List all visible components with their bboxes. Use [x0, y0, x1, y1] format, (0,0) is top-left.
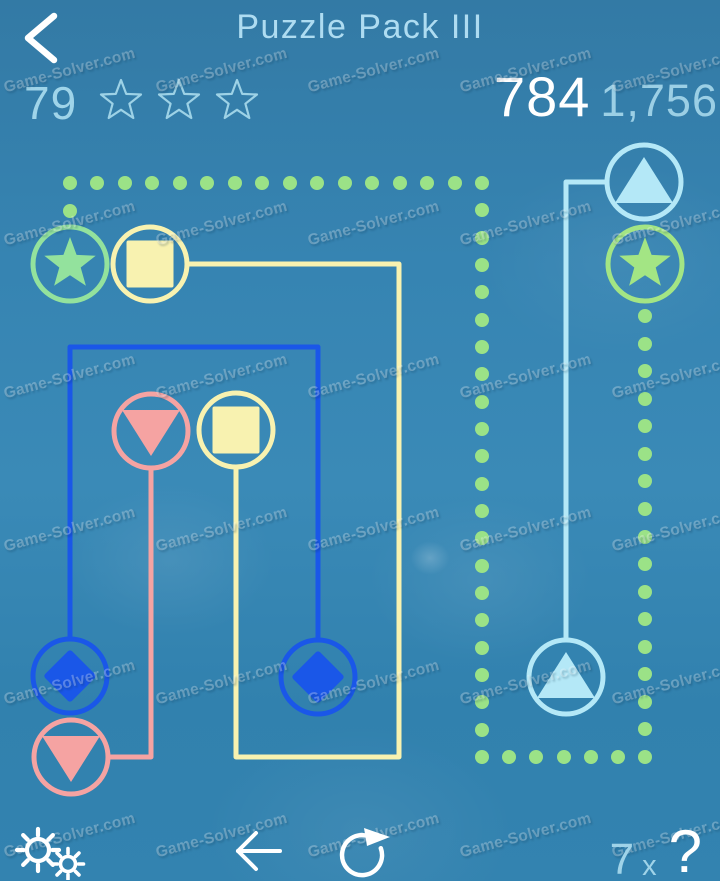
green-dot [638, 530, 652, 544]
hint-times-label: x [642, 820, 657, 881]
green-star-right-shape [619, 237, 670, 286]
green-dot [475, 613, 489, 627]
green-dot [63, 204, 77, 218]
green-dot [475, 668, 489, 682]
level-stars [97, 74, 262, 128]
green-dot [638, 612, 652, 626]
green-dot [420, 176, 434, 190]
green-dot [638, 585, 652, 599]
green-dot [475, 449, 489, 463]
score-current: 784 [494, 64, 590, 129]
cyan-triangle-top-right-shape [615, 157, 673, 203]
level-star-icon [217, 80, 257, 118]
yellow-square-top-shape [127, 241, 174, 288]
settings-button[interactable] [12, 824, 96, 880]
green-dot [475, 340, 489, 354]
green-dot [145, 176, 159, 190]
green-dot [502, 750, 516, 764]
blue-diamond-middle[interactable] [281, 640, 355, 714]
yellow-square-middle-shape [213, 407, 260, 454]
green-dot [638, 392, 652, 406]
green-dot [393, 176, 407, 190]
hint-area: 7 x ? [610, 820, 702, 882]
green-dot [475, 723, 489, 737]
undo-button[interactable] [230, 826, 288, 876]
green-dot [90, 176, 104, 190]
green-dot [638, 722, 652, 736]
green-dot [475, 641, 489, 655]
cyan-triangle-bottom-right[interactable] [529, 640, 603, 714]
green-dot [200, 176, 214, 190]
green-dot [638, 419, 652, 433]
green-dot [475, 203, 489, 217]
level-star-icon [101, 80, 141, 118]
green-dot [475, 313, 489, 327]
green-dot [611, 750, 625, 764]
score-best: 1,756 [600, 75, 718, 127]
pink-path [108, 468, 151, 757]
level-number: 79 [24, 76, 77, 130]
green-dot [557, 750, 571, 764]
green-dot [475, 395, 489, 409]
green-dot [638, 750, 652, 764]
green-dot [173, 176, 187, 190]
green-dot [638, 474, 652, 488]
blue-diamond-left[interactable] [33, 639, 107, 713]
green-dot [448, 176, 462, 190]
green-dot [283, 176, 297, 190]
hint-count: 7 [610, 820, 634, 882]
green-dot [475, 285, 489, 299]
cyan-path [566, 182, 607, 640]
green-dot [638, 667, 652, 681]
green-dot [338, 176, 352, 190]
green-dot [475, 422, 489, 436]
score-area: 784 1,756 [494, 64, 718, 129]
green-star-top-left-shape [44, 237, 95, 286]
green-dot [638, 447, 652, 461]
green-dot [475, 258, 489, 272]
green-dot [638, 337, 652, 351]
green-dot [63, 176, 77, 190]
green-dot [475, 231, 489, 245]
green-dot [638, 695, 652, 709]
blue-diamond-middle-shape [291, 650, 345, 704]
restart-button[interactable] [334, 828, 398, 882]
pink-triangle-middle[interactable] [114, 394, 188, 468]
page-title: Puzzle Pack III [0, 8, 720, 47]
green-dot [475, 477, 489, 491]
green-dot [475, 695, 489, 709]
green-dot [475, 176, 489, 190]
green-star-right[interactable] [608, 227, 682, 301]
puzzle-board[interactable] [0, 0, 720, 881]
cyan-triangle-top-right[interactable] [607, 145, 681, 219]
restart-arrow-icon [342, 828, 390, 875]
green-dot [475, 586, 489, 600]
cyan-triangle-bottom-right-shape [537, 652, 595, 698]
green-dot [638, 309, 652, 323]
undo-arrow-icon [238, 833, 280, 869]
yellow-path [187, 264, 399, 757]
gear-icon [53, 849, 84, 880]
green-dot [475, 559, 489, 573]
green-dot [638, 364, 652, 378]
green-dot [638, 557, 652, 571]
pink-triangle-middle-shape [122, 410, 180, 456]
green-dot [228, 176, 242, 190]
level-star-icon [159, 80, 199, 118]
green-dot [310, 176, 324, 190]
green-dot [638, 502, 652, 516]
green-dot [475, 367, 489, 381]
green-dot [638, 640, 652, 654]
green-dot [118, 176, 132, 190]
green-dot [255, 176, 269, 190]
green-dot [529, 750, 543, 764]
hint-button[interactable]: ? [669, 820, 702, 882]
yellow-square-top[interactable] [113, 227, 187, 301]
green-dot [584, 750, 598, 764]
green-star-top-left[interactable] [33, 227, 107, 301]
green-dot [365, 176, 379, 190]
green-dot [475, 531, 489, 545]
pink-triangle-bottom-left[interactable] [34, 720, 108, 794]
pink-triangle-bottom-left-shape [42, 736, 100, 782]
green-dot [475, 504, 489, 518]
green-dot [475, 750, 489, 764]
yellow-square-middle[interactable] [199, 393, 273, 467]
blue-path [70, 347, 318, 640]
blue-diamond-left-shape [43, 649, 97, 703]
